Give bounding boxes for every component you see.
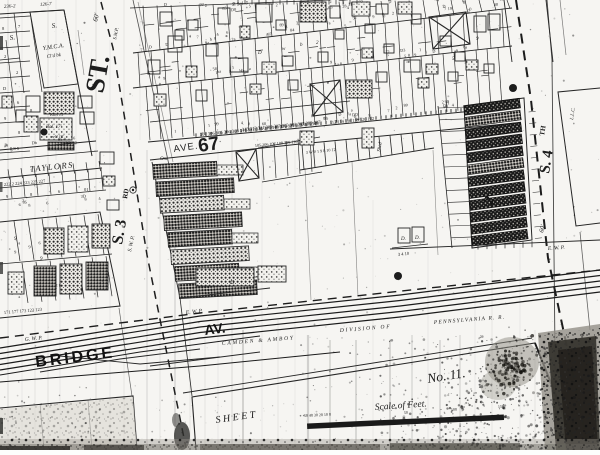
svg-text:Bal. 17': Bal. 17' — [46, 125, 62, 130]
svg-text:72: 72 — [385, 49, 390, 54]
svg-text:TH: TH — [538, 125, 548, 137]
svg-text:AV.: AV. — [203, 320, 226, 338]
svg-text:E. W. P.: E. W. P. — [547, 245, 565, 252]
svg-text:D: D — [257, 51, 262, 56]
svg-text:D.: D. — [400, 237, 406, 242]
svg-text:89: 89 — [279, 22, 284, 27]
svg-text:99: 99 — [214, 121, 219, 126]
svg-text:D.: D. — [414, 236, 420, 241]
svg-text:a9: a9 — [454, 48, 458, 53]
svg-text:D: D — [164, 2, 168, 7]
svg-text:a9: a9 — [4, 143, 8, 148]
svg-text:50: 50 — [404, 410, 408, 415]
svg-text:21: 21 — [445, 100, 450, 105]
svg-text:11: 11 — [348, 3, 353, 8]
svg-text:7a: 7a — [347, 111, 352, 116]
svg-text:126-7: 126-7 — [40, 2, 52, 8]
svg-text:1a: 1a — [335, 61, 340, 66]
svg-text:93: 93 — [199, 2, 204, 7]
svg-text:3b: 3b — [324, 116, 329, 121]
svg-text:9a: 9a — [205, 40, 210, 45]
svg-text:80: 80 — [403, 102, 408, 107]
svg-text:7a: 7a — [326, 20, 331, 25]
svg-text:88: 88 — [494, 2, 499, 7]
svg-text:58: 58 — [212, 66, 217, 71]
svg-text:Om.: Om. — [160, 157, 168, 162]
svg-text:01: 01 — [84, 187, 89, 192]
svg-text:2: 2 — [4, 54, 6, 59]
svg-text:b0: b0 — [66, 140, 71, 145]
svg-text:D3: D3 — [400, 47, 406, 53]
svg-text:Kiln 15': Kiln 15' — [49, 112, 65, 117]
svg-text:3D: 3D — [80, 193, 86, 199]
svg-text:2: 2 — [16, 70, 18, 75]
svg-text:95: 95 — [22, 199, 27, 204]
svg-text:236-2: 236-2 — [4, 4, 16, 10]
svg-text:D: D — [388, 0, 392, 4]
svg-text:2a: 2a — [231, 36, 236, 41]
svg-text:6: 6 — [462, 0, 465, 3]
svg-text:D: D — [149, 44, 153, 49]
svg-text:2: 2 — [329, 0, 332, 4]
svg-text:95: 95 — [58, 137, 63, 142]
svg-text:Db: Db — [31, 140, 37, 146]
svg-text:67: 67 — [197, 133, 221, 157]
svg-text:19: 19 — [447, 6, 452, 11]
svg-text:D: D — [229, 280, 235, 286]
svg-text:ba: ba — [217, 69, 222, 74]
